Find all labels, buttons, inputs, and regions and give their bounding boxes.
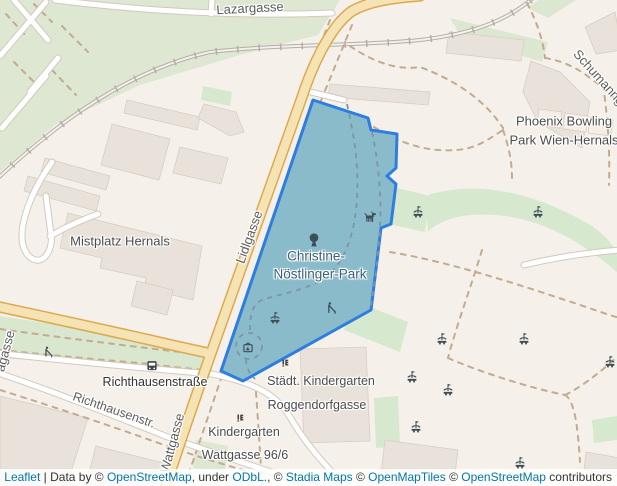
attribution-bar: Leaflet | Data by © OpenStreetMap, under… [0,469,617,486]
odbl-link[interactable]: ODbL. [232,470,267,484]
stadia-maps-link[interactable]: Stadia Maps [286,470,353,484]
attribution-text: © [353,470,369,484]
attribution-text: © [446,470,462,484]
openstreetmap-link[interactable]: OpenStreetMap [461,470,546,484]
openstreetmap-link[interactable]: OpenStreetMap [107,470,192,484]
leaflet-link[interactable]: Leaflet [4,470,40,484]
attribution-text: , © [267,470,286,484]
map-canvas[interactable]: Lazargasse Schumanngasse Lidlgasse Wattg… [0,0,617,486]
attribution-text: contributors [546,470,612,484]
attribution-text: | Data by © [40,470,107,484]
attribution-text: , under [192,470,233,484]
map-tile-layer [0,0,617,486]
openmaptiles-link[interactable]: OpenMapTiles [368,470,446,484]
